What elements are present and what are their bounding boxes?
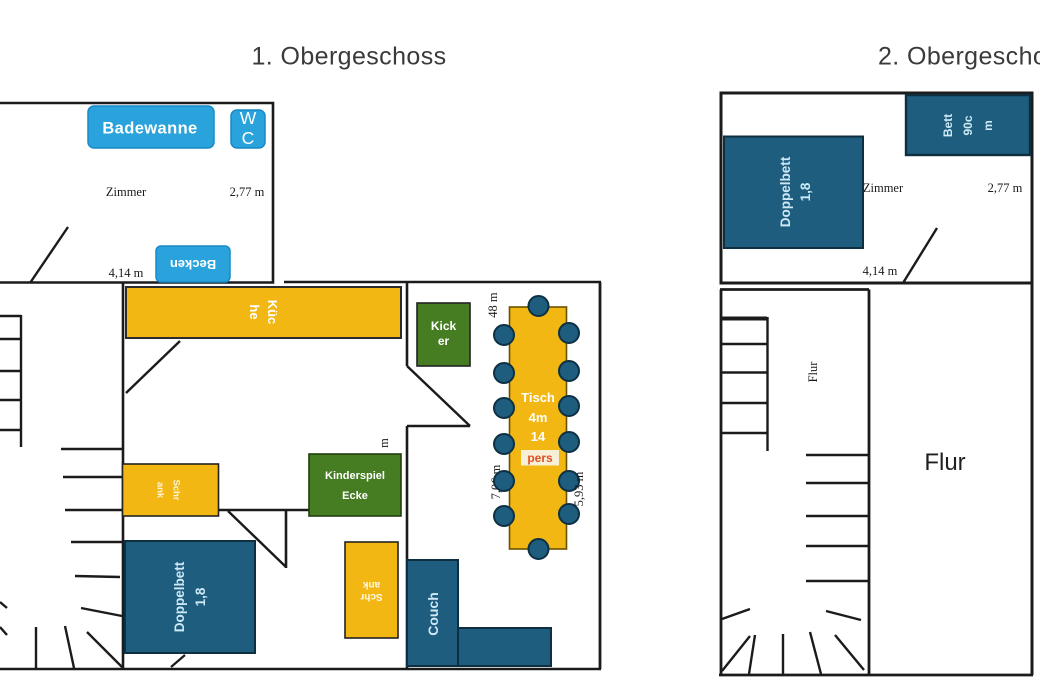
svg-text:m: m [377, 438, 391, 448]
svg-text:Kinderspiel: Kinderspiel [325, 470, 385, 482]
svg-text:Tisch: Tisch [521, 390, 555, 405]
svg-text:2,77 m: 2,77 m [230, 185, 265, 199]
svg-text:Badewanne: Badewanne [102, 120, 197, 138]
svg-text:Zimmer: Zimmer [106, 185, 147, 199]
svg-text:2,77 m: 2,77 m [988, 181, 1023, 195]
svg-text:4,14 m: 4,14 m [109, 266, 144, 280]
svg-text:pers: pers [527, 451, 553, 465]
svg-text:Couch: Couch [425, 592, 441, 636]
svg-text:4,14 m: 4,14 m [863, 264, 898, 278]
svg-text:W: W [240, 108, 257, 128]
svg-text:Ecke: Ecke [342, 490, 368, 502]
svg-text:Schrank: Schrank [360, 579, 382, 602]
svg-text:48 m: 48 m [486, 292, 500, 318]
svg-text:er: er [438, 334, 450, 348]
svg-text:Flur: Flur [924, 449, 965, 476]
svg-text:5,93 m: 5,93 m [572, 471, 586, 506]
svg-text:Zimmer: Zimmer [863, 181, 904, 195]
svg-text:Becken: Becken [170, 257, 216, 272]
svg-text:1. Obergeschoss: 1. Obergeschoss [252, 43, 447, 71]
svg-text:Kick: Kick [431, 319, 457, 333]
svg-text:4m: 4m [529, 410, 548, 425]
svg-text:14: 14 [531, 429, 546, 444]
svg-text:2. Obergeschoss: 2. Obergeschoss [878, 43, 1040, 71]
svg-text:C: C [242, 128, 255, 148]
svg-text:Flur: Flur [806, 361, 820, 383]
